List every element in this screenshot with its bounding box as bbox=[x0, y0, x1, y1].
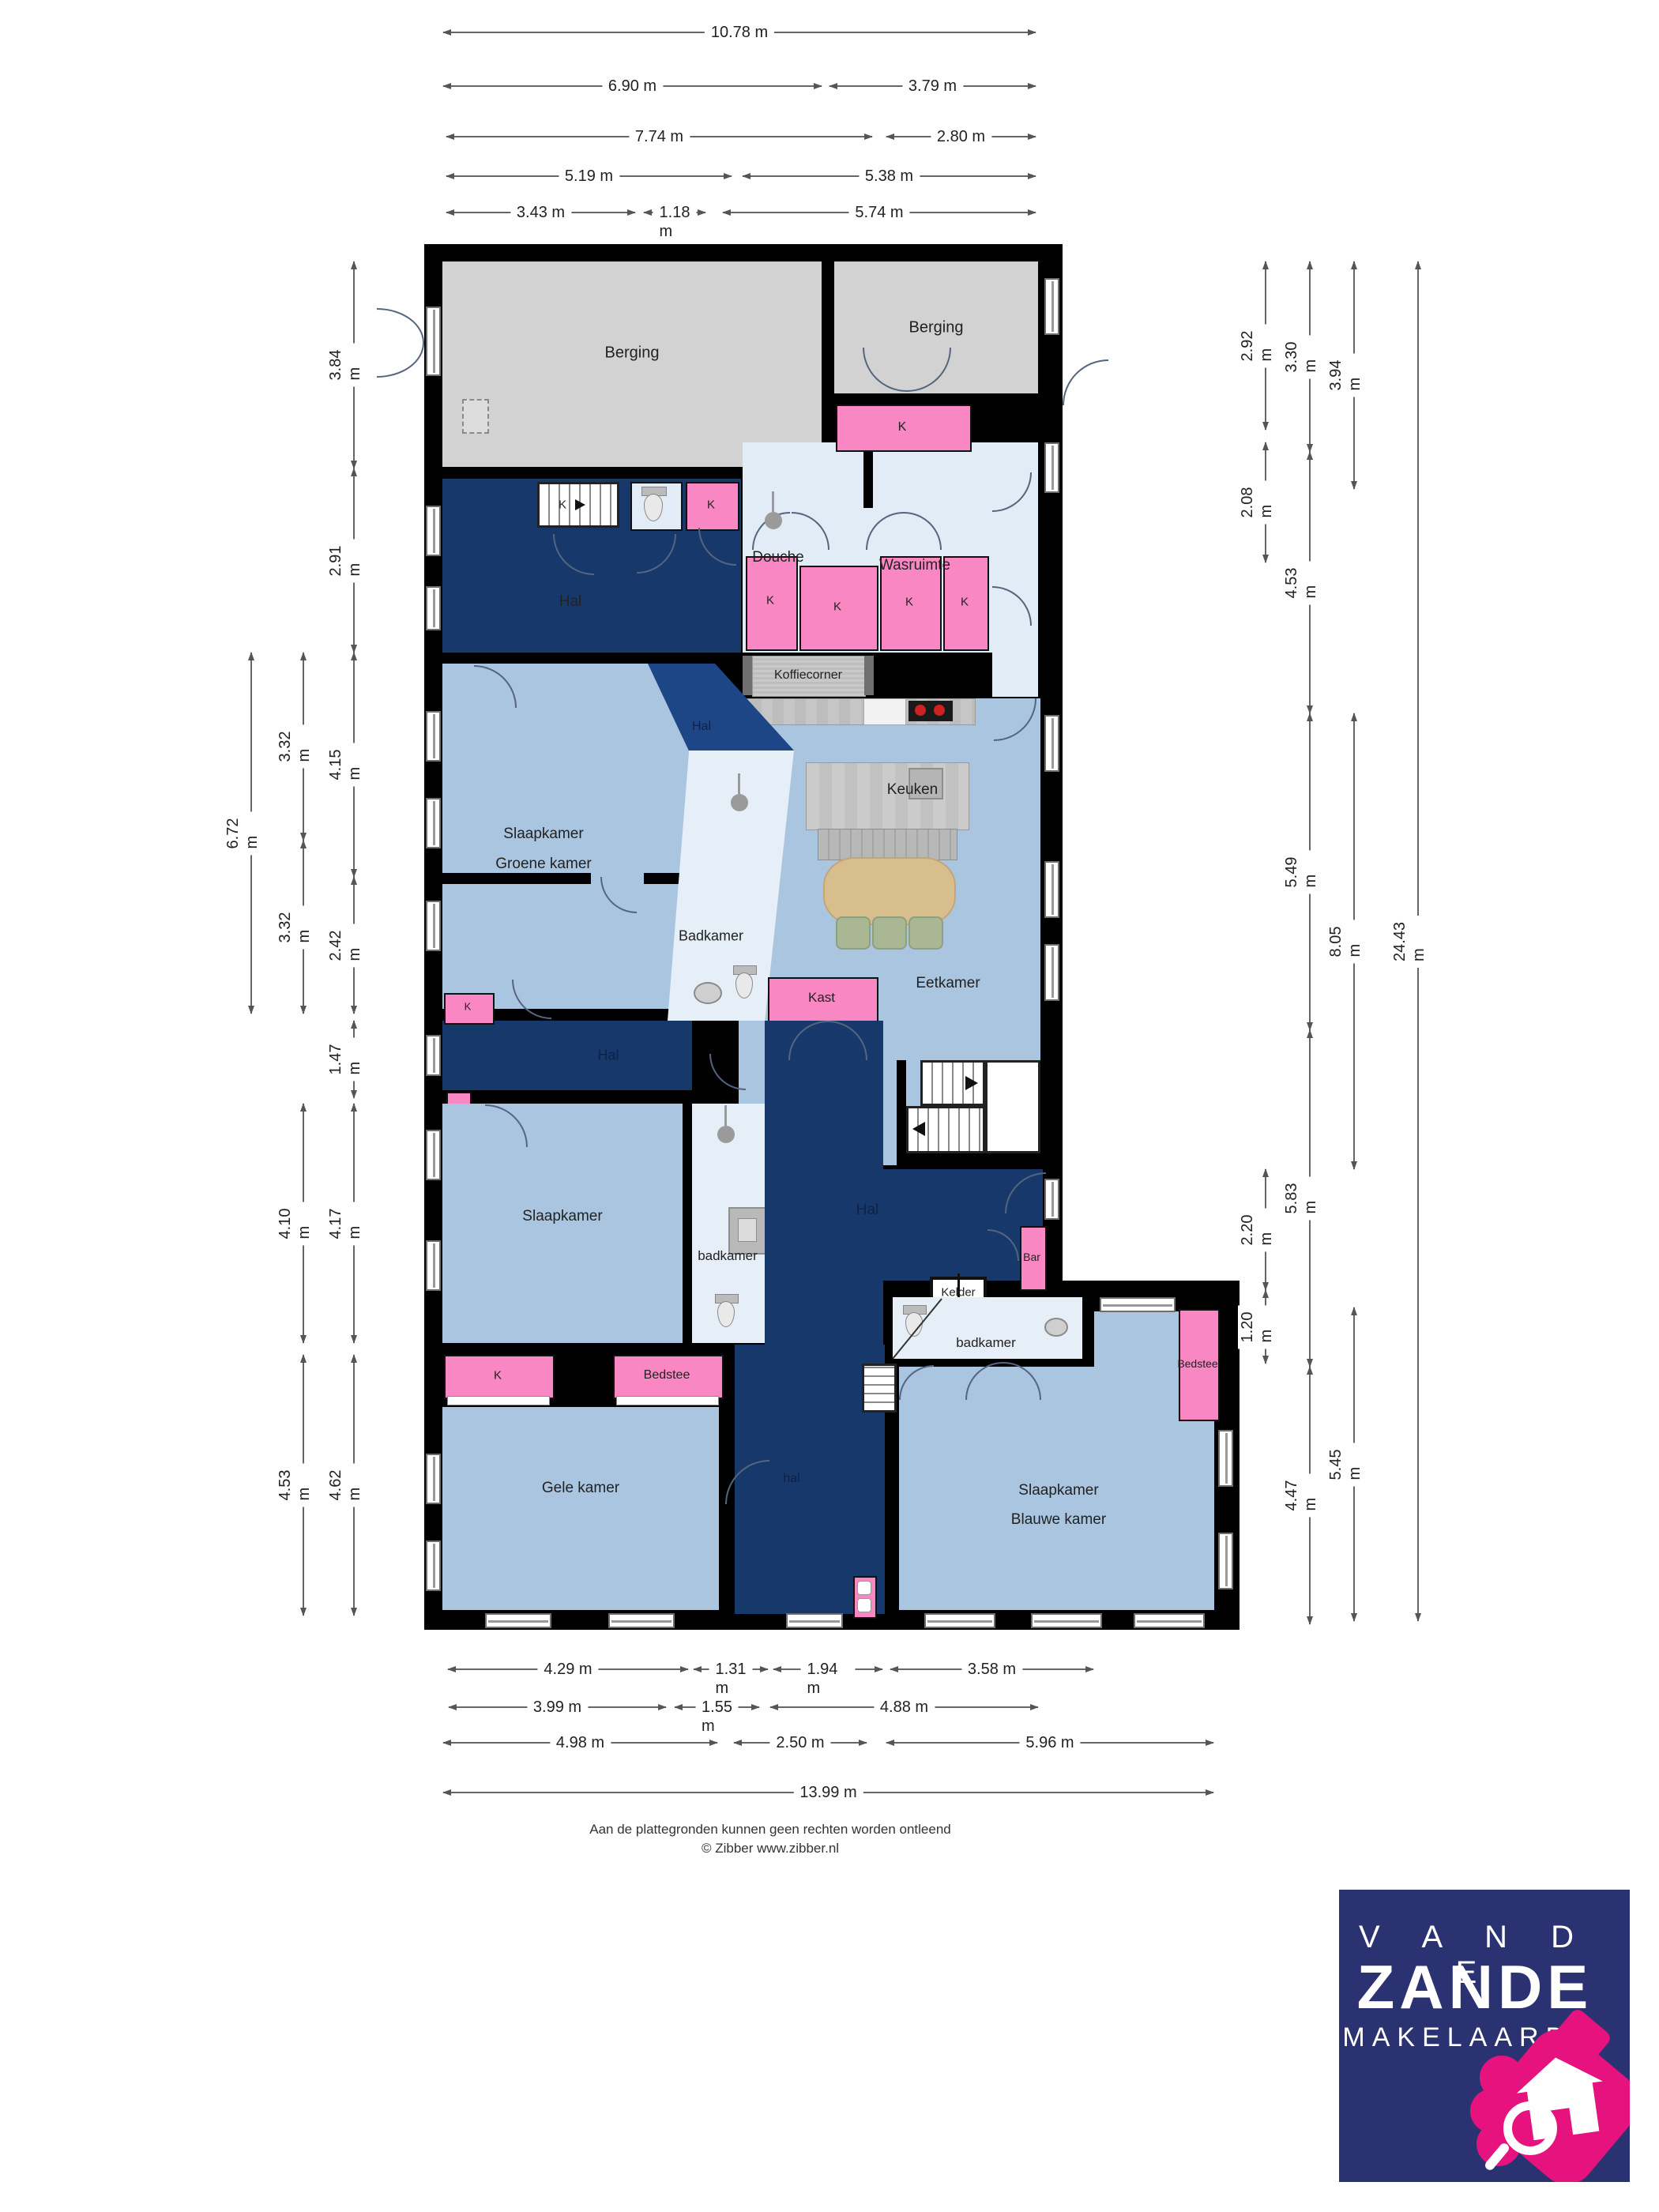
window bbox=[608, 1613, 675, 1628]
bedstee-doors-b bbox=[616, 1396, 719, 1405]
dim: 3.94 m bbox=[1353, 261, 1355, 489]
hal-sink-basin2 bbox=[857, 1598, 871, 1612]
window bbox=[1044, 1179, 1059, 1220]
dim: 4.88 m bbox=[770, 1706, 1038, 1708]
stairwell-wall-left bbox=[897, 1060, 906, 1165]
label-berging-left: Berging bbox=[605, 344, 660, 363]
label-badkamer-upper: Badkamer bbox=[679, 928, 743, 945]
dim: 2.08 m bbox=[1265, 442, 1266, 562]
window bbox=[1134, 1613, 1205, 1628]
dim: 5.45 m bbox=[1353, 1307, 1355, 1621]
dim: 5.38 m bbox=[743, 175, 1036, 177]
dim: 2.91 m bbox=[353, 468, 355, 653]
window bbox=[426, 711, 441, 762]
window bbox=[426, 1035, 441, 1076]
dim: 2.80 m bbox=[886, 136, 1036, 137]
badkamer-door-line bbox=[893, 1297, 948, 1360]
dim: 4.98 m bbox=[443, 1742, 717, 1744]
window bbox=[1100, 1297, 1176, 1312]
label-groene-kamer: Groene kamer bbox=[495, 856, 591, 873]
dim: 1.94 m bbox=[773, 1668, 882, 1670]
label-badkamer-wing: badkamer bbox=[956, 1335, 1016, 1351]
stairs-blauwe bbox=[862, 1364, 897, 1413]
window bbox=[426, 506, 441, 556]
dim: 5.96 m bbox=[886, 1742, 1213, 1744]
burner-1 bbox=[915, 705, 926, 716]
room-gele-kamer bbox=[442, 1407, 719, 1610]
dim: 2.50 m bbox=[734, 1742, 867, 1744]
label-bedstee-left: Bedstee bbox=[644, 1368, 690, 1382]
dim: 4.17 m bbox=[353, 1104, 355, 1343]
dim: 4.53 m bbox=[1309, 452, 1311, 713]
koffiecorner-cap-right bbox=[864, 656, 874, 695]
dim: 4.10 m bbox=[303, 1104, 304, 1343]
footer-disclaimer: Aan de plattegronden kunnen geen rechten… bbox=[589, 1822, 950, 1838]
toilet-icon-3 bbox=[715, 1294, 737, 1327]
stairs-arrow-down-icon bbox=[912, 1122, 925, 1136]
window bbox=[426, 1240, 441, 1291]
door-arc bbox=[377, 308, 424, 343]
floorplan-page: Berging Berging K K K Douche Wasruimte H… bbox=[0, 0, 1659, 2212]
dim: 1.55 m bbox=[675, 1706, 759, 1708]
label-k-berging: K bbox=[898, 420, 907, 434]
dim: 3.99 m bbox=[449, 1706, 666, 1708]
label-hal-diag: Hal bbox=[692, 720, 711, 734]
dim: 3.58 m bbox=[890, 1668, 1093, 1670]
label-k-stairs: K bbox=[559, 498, 566, 511]
window bbox=[1044, 715, 1059, 772]
dim: 1.47 m bbox=[353, 1021, 355, 1098]
dim: 3.30 m bbox=[1309, 261, 1311, 452]
label-bar: Bar bbox=[1023, 1251, 1040, 1263]
label-keuken: Keuken bbox=[887, 781, 938, 799]
label-douche: Douche bbox=[752, 549, 804, 566]
dim: 5.19 m bbox=[446, 175, 732, 177]
label-kelder: Kelder bbox=[941, 1285, 975, 1299]
dim: 7.74 m bbox=[446, 136, 872, 137]
stairs-arrow-up-icon bbox=[965, 1076, 978, 1090]
label-eetkamer: Eetkamer bbox=[916, 975, 980, 992]
window bbox=[1044, 278, 1059, 335]
dim: 6.90 m bbox=[443, 85, 822, 87]
label-hal-band: Hal bbox=[597, 1048, 619, 1064]
island-drawers bbox=[818, 829, 957, 860]
room-hal-band bbox=[442, 1021, 692, 1090]
label-blauwe-kamer: Blauwe kamer bbox=[1011, 1511, 1106, 1529]
dim: 5.49 m bbox=[1309, 713, 1311, 1030]
stairs-landing bbox=[985, 1060, 1040, 1153]
label-badkamer-mid: badkamer bbox=[698, 1248, 758, 1264]
dim: 3.32 m bbox=[303, 653, 304, 841]
label-bedstee-right: Bedstee bbox=[1177, 1357, 1217, 1370]
label-gele-kamer: Gele kamer bbox=[542, 1480, 619, 1497]
window bbox=[426, 901, 441, 951]
dim: 1.31 m bbox=[694, 1668, 768, 1670]
sink-icon-1 bbox=[694, 982, 722, 1004]
label-k-row4: K bbox=[961, 595, 969, 608]
label-hal-bottom: hal bbox=[783, 1472, 799, 1486]
dim: 2.92 m bbox=[1265, 261, 1266, 430]
dim: 4.15 m bbox=[353, 653, 355, 877]
window bbox=[426, 586, 441, 630]
kitchen-sink-section bbox=[863, 698, 906, 725]
label-slaapkamer-mid: Slaapkamer bbox=[522, 1208, 602, 1225]
dim: 1.18 m bbox=[644, 212, 705, 213]
label-wasruimte: Wasruimte bbox=[879, 557, 950, 574]
burner-2 bbox=[934, 705, 945, 716]
logo-house-magnifier-icon bbox=[1456, 2008, 1630, 2182]
toilet-icon bbox=[641, 487, 665, 521]
dim: 6.72 m bbox=[250, 653, 252, 1014]
shower-icon-douche bbox=[765, 512, 782, 529]
hal-sink-basin1 bbox=[857, 1581, 871, 1595]
room-berging-left bbox=[442, 261, 822, 467]
label-k-top: K bbox=[707, 498, 715, 511]
dim: 2.42 m bbox=[353, 877, 355, 1014]
window bbox=[1218, 1533, 1233, 1589]
dim: 1.20 m bbox=[1265, 1290, 1266, 1364]
chair-2 bbox=[872, 916, 907, 950]
dim: 3.84 m bbox=[353, 261, 355, 468]
window bbox=[1044, 861, 1059, 918]
toilet-icon-2 bbox=[733, 965, 755, 999]
label-hal-top: Hal bbox=[559, 593, 582, 611]
label-k-row2: K bbox=[833, 600, 841, 613]
vandezande-logo: V A N D E ZANDE MAKELAARDIJ bbox=[1339, 1890, 1630, 2182]
dim: 3.79 m bbox=[829, 85, 1036, 87]
dim: 4.62 m bbox=[353, 1355, 355, 1616]
window bbox=[786, 1613, 843, 1628]
label-koffiecorner: Koffiecorner bbox=[774, 668, 842, 683]
window bbox=[426, 798, 441, 848]
label-slaapkamer-blauwe: Slaapkamer bbox=[1018, 1482, 1098, 1499]
dim-bottom-total: 13.99 m bbox=[443, 1792, 1213, 1793]
label-k-bottom: K bbox=[494, 1368, 502, 1382]
window bbox=[1031, 1613, 1102, 1628]
dim: 3.43 m bbox=[446, 212, 635, 213]
window bbox=[1218, 1430, 1233, 1487]
window bbox=[426, 1540, 441, 1591]
vanity-basin bbox=[738, 1218, 757, 1242]
footer-credit: © Zibber www.zibber.nl bbox=[702, 1841, 839, 1856]
room-hal-center-a bbox=[765, 1021, 883, 1345]
bedstee-doors-a bbox=[447, 1396, 550, 1405]
dim: 4.53 m bbox=[303, 1355, 304, 1616]
dim-right-total: 24.43 m bbox=[1417, 261, 1419, 1621]
dim-top-total: 10.78 m bbox=[443, 32, 1036, 33]
shower-icon-1 bbox=[731, 794, 748, 811]
label-hal-center: Hal bbox=[856, 1202, 879, 1219]
door-arc bbox=[1063, 359, 1108, 405]
berging-hatch bbox=[462, 399, 489, 434]
window bbox=[1044, 442, 1059, 493]
dim: 5.83 m bbox=[1309, 1030, 1311, 1367]
dim: 8.05 m bbox=[1353, 713, 1355, 1169]
window bbox=[426, 1130, 441, 1180]
chair-3 bbox=[908, 916, 943, 950]
dim: 4.29 m bbox=[448, 1668, 688, 1670]
dim: 4.47 m bbox=[1309, 1367, 1311, 1624]
label-berging-right: Berging bbox=[909, 319, 964, 337]
dim: 5.74 m bbox=[723, 212, 1036, 213]
dining-table bbox=[823, 857, 956, 925]
koffiecorner-cap-left bbox=[743, 656, 752, 695]
chair-1 bbox=[836, 916, 871, 950]
label-slaapkamer-groene: Slaapkamer bbox=[503, 826, 583, 843]
stairs-top-arrow-icon bbox=[575, 499, 585, 510]
label-k-row3: K bbox=[905, 595, 913, 608]
label-k-row1: K bbox=[766, 593, 774, 607]
dim: 2.20 m bbox=[1265, 1169, 1266, 1290]
sink-icon-2 bbox=[1044, 1318, 1068, 1337]
groene-divider-a bbox=[442, 873, 591, 884]
door-arc bbox=[377, 343, 424, 378]
window bbox=[1044, 944, 1059, 1001]
window bbox=[426, 307, 441, 376]
window bbox=[924, 1613, 995, 1628]
dim: 3.32 m bbox=[303, 841, 304, 1014]
window bbox=[426, 1454, 441, 1504]
shower-icon-2 bbox=[717, 1126, 735, 1143]
label-kast: Kast bbox=[808, 990, 835, 1006]
stairwell-wall-bottom bbox=[897, 1153, 1043, 1168]
window bbox=[485, 1613, 551, 1628]
label-k-band: K bbox=[465, 1002, 472, 1014]
